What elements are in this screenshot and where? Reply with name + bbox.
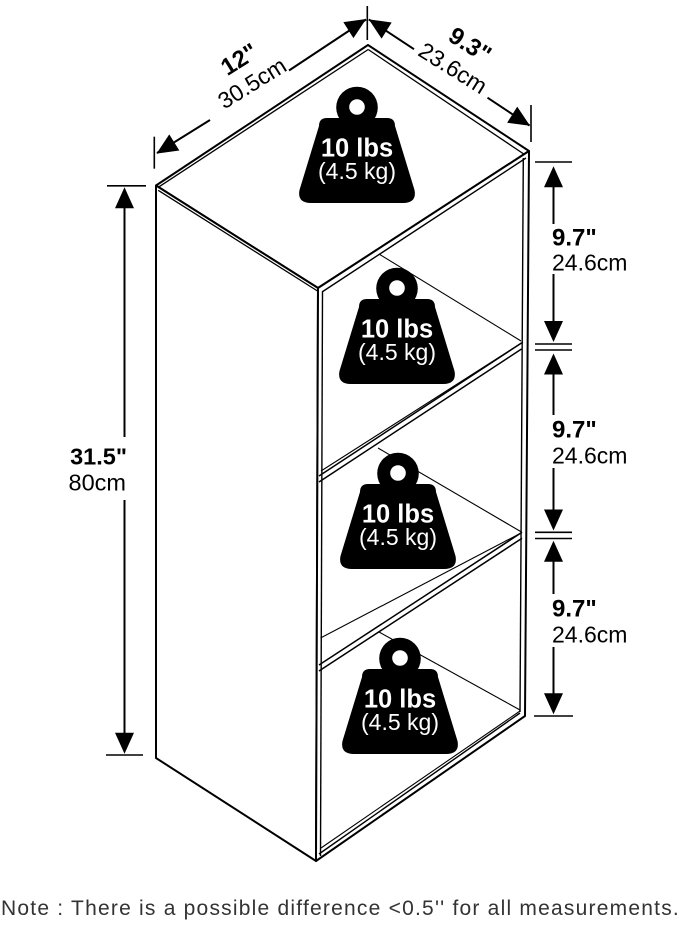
svg-text:80cm: 80cm: [69, 470, 126, 496]
svg-text:Note : There is a possible dif: Note : There is a possible difference <0…: [1, 897, 679, 920]
svg-text:9.7": 9.7": [552, 596, 597, 623]
svg-text:24.6cm: 24.6cm: [552, 250, 627, 276]
svg-text:9.7": 9.7": [552, 417, 597, 444]
svg-text:9.7": 9.7": [552, 225, 597, 252]
svg-text:24.6cm: 24.6cm: [552, 622, 627, 648]
svg-text:31.5": 31.5": [70, 444, 127, 470]
svg-text:24.6cm: 24.6cm: [552, 443, 627, 469]
